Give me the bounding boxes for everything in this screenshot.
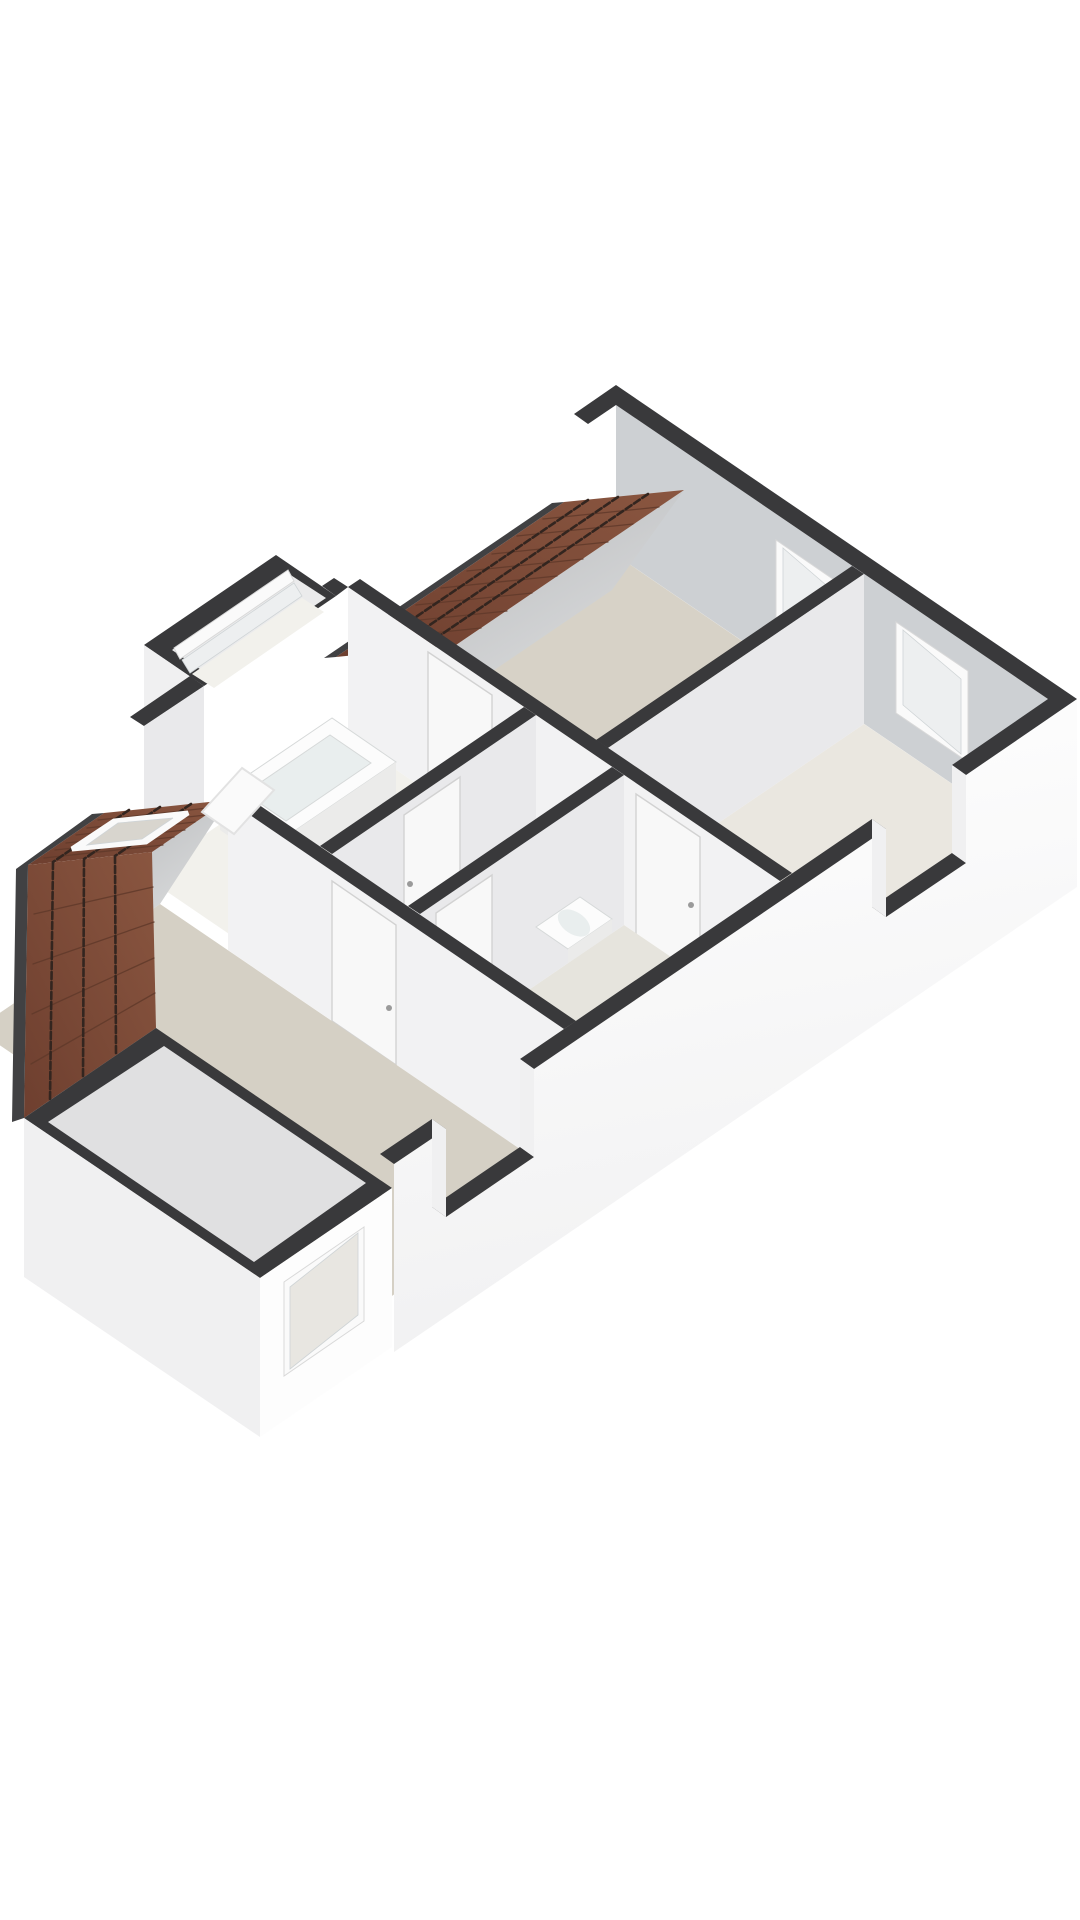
facade-opening-1-jamb-r — [872, 819, 886, 917]
floorplan-3d-view — [0, 0, 1080, 1920]
facade-opening-1-jamb-l — [952, 765, 966, 863]
door-bedroom-b-handle — [688, 902, 694, 908]
floorplan-canvas — [0, 0, 1080, 1920]
facade-opening-2-jamb-l — [520, 1059, 534, 1157]
building — [0, 385, 1077, 1437]
nw-corner-wall-top — [574, 385, 616, 424]
door-bathroom-handle — [407, 881, 413, 887]
facade-opening-2-jamb-r — [432, 1119, 446, 1217]
door-attic-room-handle — [386, 1005, 392, 1011]
